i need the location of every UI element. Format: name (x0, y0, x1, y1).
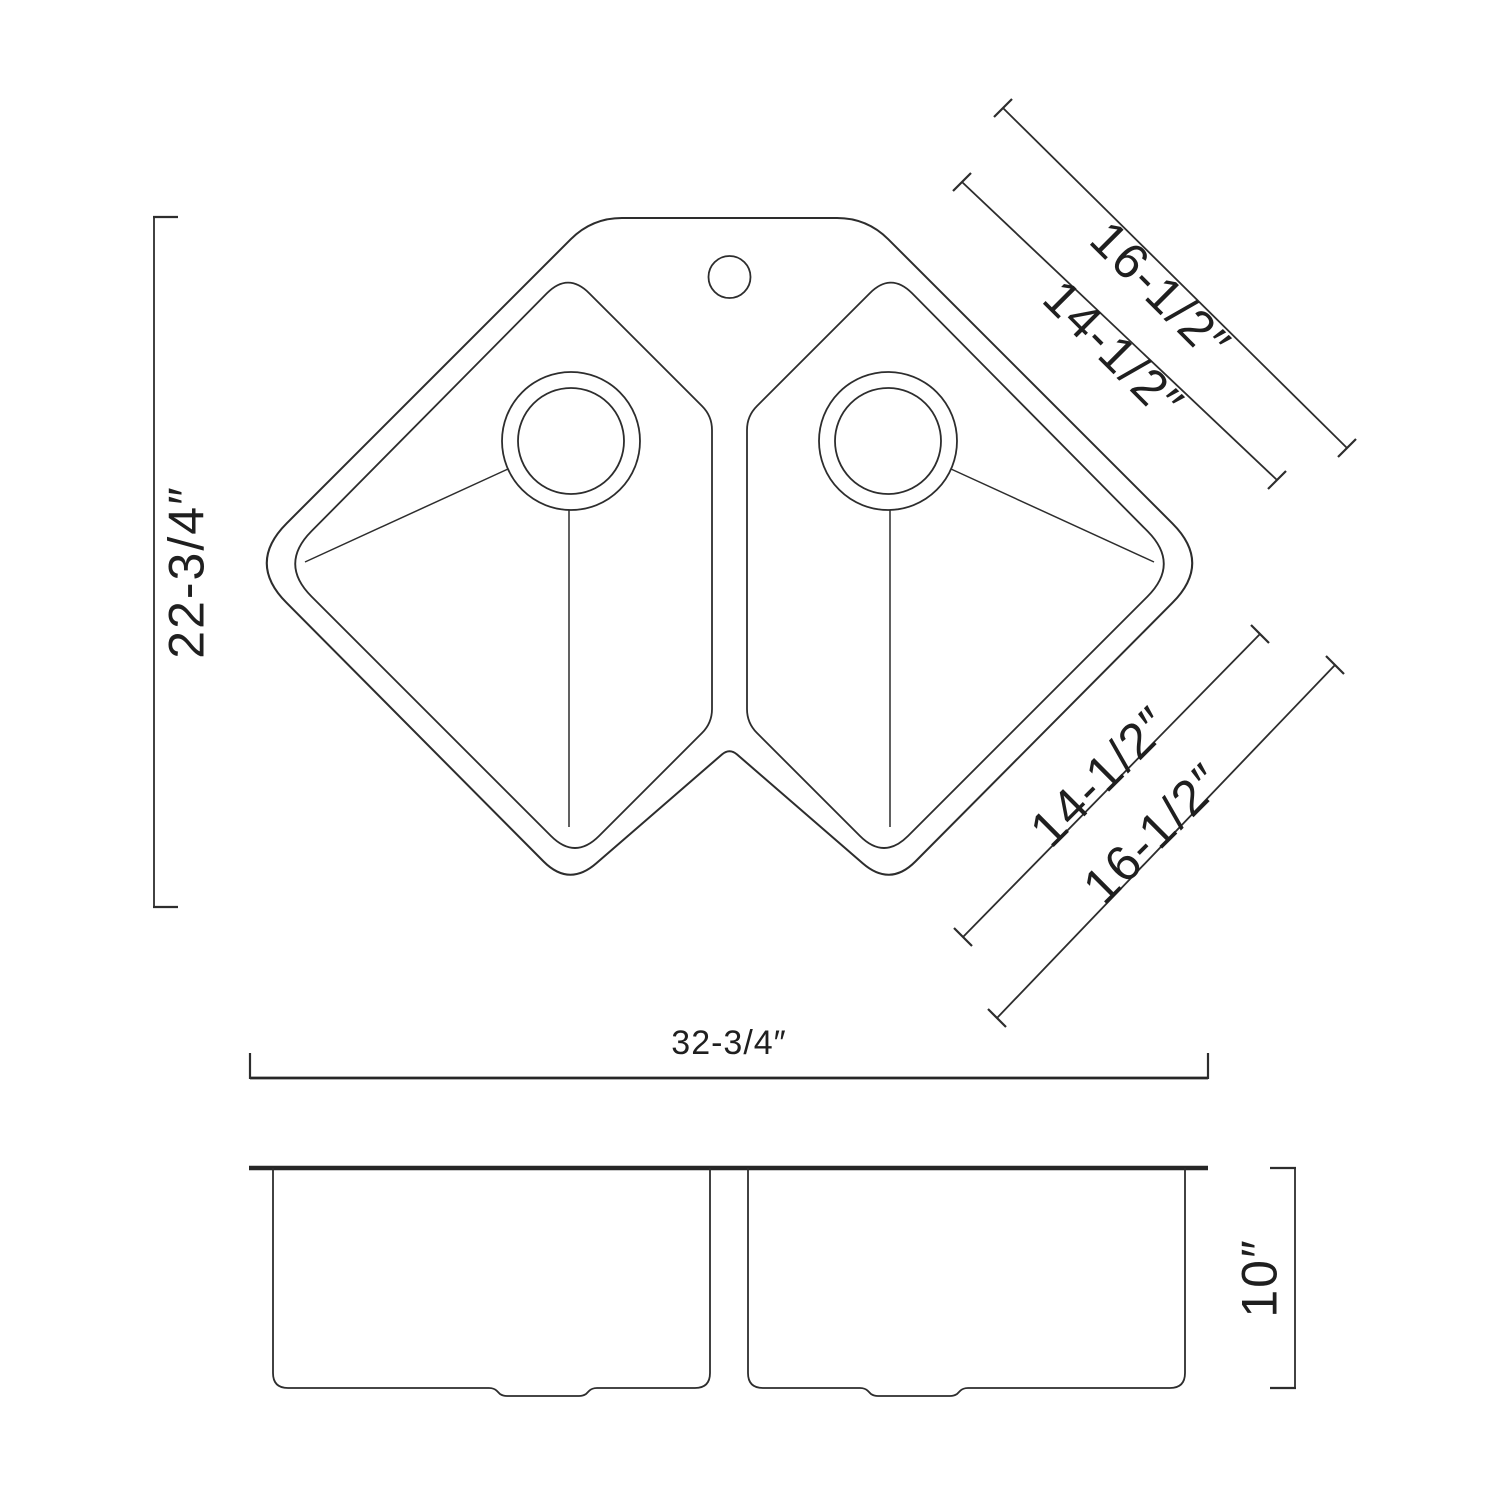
side-view-left-bowl (273, 1168, 710, 1396)
dimension-bottom-right-outer: 16-1/2″ (988, 656, 1344, 1027)
right-drain (819, 372, 957, 510)
side-view-right-bowl (748, 1168, 1185, 1396)
left-drain-inner-ring (518, 388, 624, 494)
dimension-overall-height: 22-3/4″ (153, 217, 215, 907)
sink-dimension-drawing-page: 22-3/4″ 32-3/4″ 16-1/2″ 14-1/2″ (0, 0, 1500, 1500)
left-drain (502, 372, 640, 510)
left-bowl-corner-crease-line (305, 469, 508, 562)
left-bowl-outline (295, 283, 712, 848)
dim-height-label: 22-3/4″ (159, 485, 215, 658)
left-drain-outer-ring (502, 372, 640, 510)
side-view: 10″ (249, 1168, 1296, 1396)
faucet-hole (709, 256, 751, 298)
right-drain-inner-ring (835, 388, 941, 494)
dim-width-label: 32-3/4″ (671, 1024, 786, 1062)
dim-depth-label: 10″ (1232, 1238, 1288, 1317)
dimension-overall-width: 32-3/4″ (250, 1024, 1208, 1079)
right-drain-outer-ring (819, 372, 957, 510)
dimension-depth: 10″ (1232, 1168, 1297, 1388)
right-bowl-corner-crease-line (951, 469, 1154, 562)
sink-dimension-drawing: 22-3/4″ 32-3/4″ 16-1/2″ 14-1/2″ (0, 0, 1500, 1500)
